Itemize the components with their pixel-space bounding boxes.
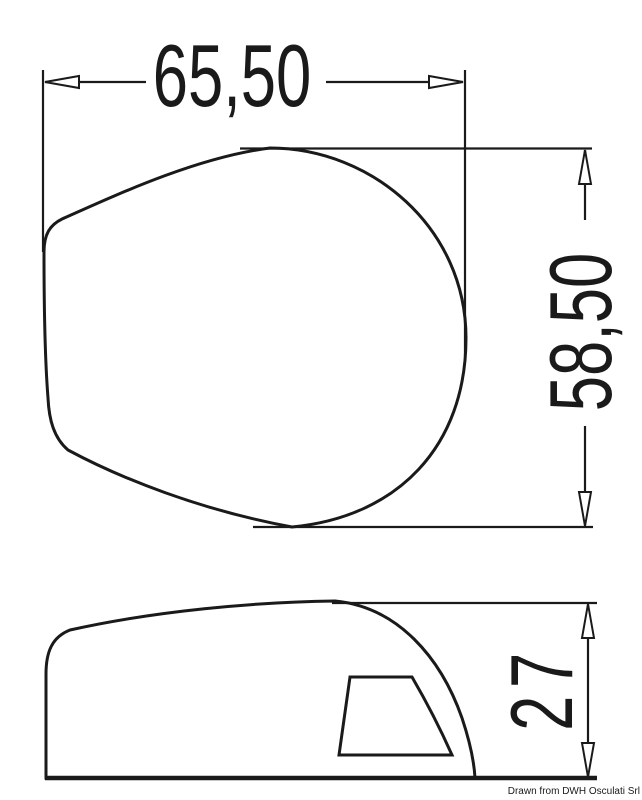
depth-arrowhead-down bbox=[582, 743, 594, 777]
depth-dimension-label: 27 bbox=[498, 628, 586, 747]
width-arrowhead-right bbox=[429, 76, 463, 88]
top-view-outline bbox=[44, 148, 466, 527]
height-dimension-label: 58,50 bbox=[537, 222, 625, 442]
lens-window-outline bbox=[339, 677, 452, 755]
width-dimension-value: 65,50 bbox=[153, 32, 312, 120]
width-arrowhead-left bbox=[45, 76, 79, 88]
height-arrowhead-down bbox=[579, 492, 591, 526]
drawing-credit-text: Drawn from DWH Osculati Srl bbox=[340, 786, 640, 797]
height-dimension-value: 58,50 bbox=[537, 253, 625, 412]
side-view-outline bbox=[46, 601, 475, 778]
technical-drawing-canvas: 65,50 58,50 27 Drawn from DWH Osculati S… bbox=[0, 0, 642, 800]
height-arrowhead-up bbox=[579, 150, 591, 184]
width-dimension-label: 65,50 bbox=[122, 32, 342, 120]
depth-dimension-value: 27 bbox=[498, 645, 586, 731]
